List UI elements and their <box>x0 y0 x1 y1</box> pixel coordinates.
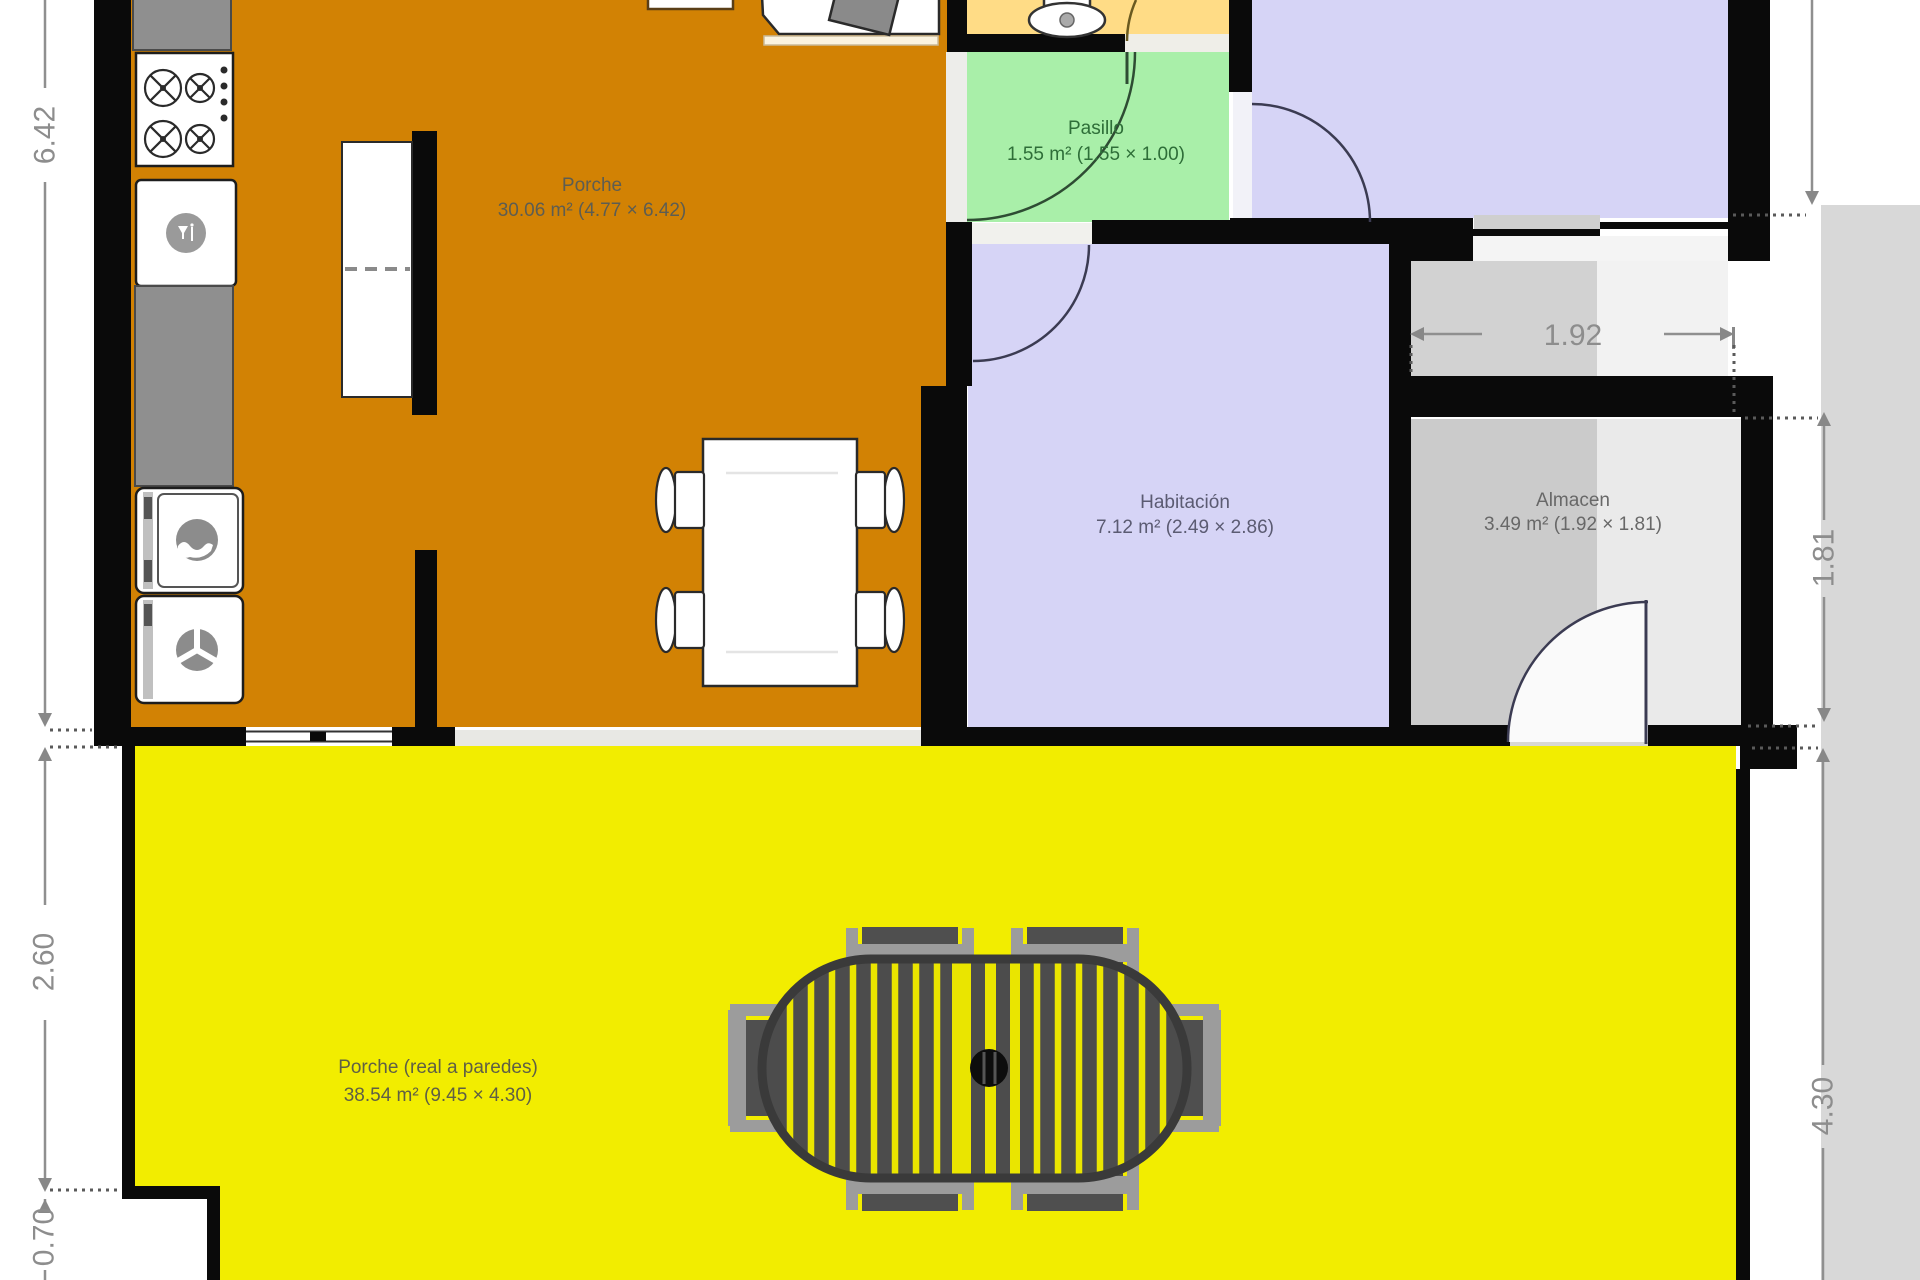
svg-text:Pasillo: Pasillo <box>1068 118 1124 139</box>
svg-text:Porche (real a paredes): Porche (real a paredes) <box>338 1057 538 1078</box>
svg-text:1.81: 1.81 <box>1808 529 1841 587</box>
svg-text:7.12 m² (2.49 × 2.86): 7.12 m² (2.49 × 2.86) <box>1096 517 1274 538</box>
svg-text:38.54 m² (9.45 × 4.30): 38.54 m² (9.45 × 4.30) <box>344 1085 533 1106</box>
svg-text:1.92: 1.92 <box>1544 319 1602 352</box>
svg-text:4.30: 4.30 <box>1807 1077 1840 1135</box>
svg-text:6.42: 6.42 <box>29 106 62 164</box>
svg-text:0.70: 0.70 <box>28 1208 61 1266</box>
svg-text:3.49 m² (1.92 × 1.81): 3.49 m² (1.92 × 1.81) <box>1484 514 1662 535</box>
svg-text:Habitación: Habitación <box>1140 492 1230 513</box>
svg-text:2.60: 2.60 <box>28 933 61 991</box>
svg-text:Almacen: Almacen <box>1536 490 1610 511</box>
svg-text:Porche: Porche <box>562 175 622 196</box>
svg-text:30.06 m² (4.77 × 6.42): 30.06 m² (4.77 × 6.42) <box>498 200 687 221</box>
svg-text:1.55 m² (1.55 × 1.00): 1.55 m² (1.55 × 1.00) <box>1007 144 1185 165</box>
